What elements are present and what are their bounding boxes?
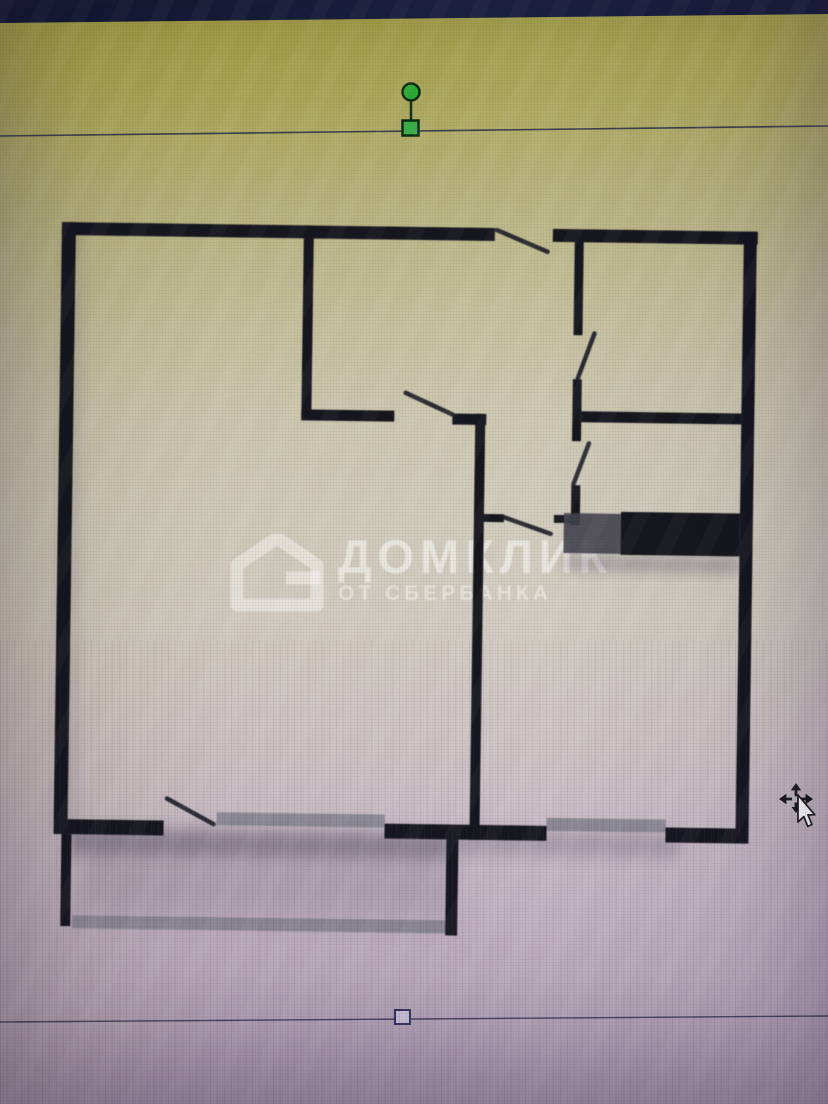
watermark-subtitle: ОТ СБЕРБАНКА [338,582,613,606]
window-segment [72,915,448,933]
wall-segment [665,827,745,843]
wall-segment [573,233,583,335]
wall-segment [581,411,741,424]
wall-segment [301,225,314,417]
wall-shadow [451,831,681,856]
wall-shadow [69,828,451,859]
wall-segment [554,515,571,523]
window-segment [547,818,666,833]
wall-segment [572,379,582,441]
door-swing-line [167,799,214,825]
screen-top-bezel-bar [0,0,828,24]
bottom-resize-handle[interactable] [395,1010,410,1024]
wall-segment [483,514,504,522]
door-swing-line [573,443,589,484]
move-cursor-icon [776,782,822,838]
domclick-house-icon [230,534,324,612]
window-segment [217,812,385,827]
thick-wall-block [620,512,740,557]
door-swing-line [405,393,452,415]
wall-segment [571,485,581,525]
wall-segment [445,839,458,935]
photographed-screen: { "screen": { "top_bar_color": "#161b38"… [0,0,828,1104]
wall-segment [60,834,71,926]
domclick-watermark: ДОМКЛИК ОТ СБЕРБАНКА [230,534,613,612]
wall-shadow [82,842,451,919]
wall-segment [553,229,758,245]
wall-segment [63,819,163,835]
wall-segment [735,232,757,844]
moire-stripes-texture [0,640,828,1104]
wall-segment [452,413,486,424]
door-swing-line [578,333,595,378]
wall-segment [53,222,76,834]
wall-shadow [58,230,82,830]
selection-bottom-edge[interactable] [0,1016,828,1022]
selection-top-edge[interactable] [0,126,828,136]
wall-segment [469,414,485,840]
wall-segment [62,222,495,241]
top-resize-handle[interactable] [403,121,419,136]
wall-segment [301,409,394,421]
door-swing-line [497,230,548,252]
wall-segment [384,824,546,841]
watermark-title: ДОМКЛИК [338,534,613,580]
rotation-handle[interactable] [403,84,420,101]
